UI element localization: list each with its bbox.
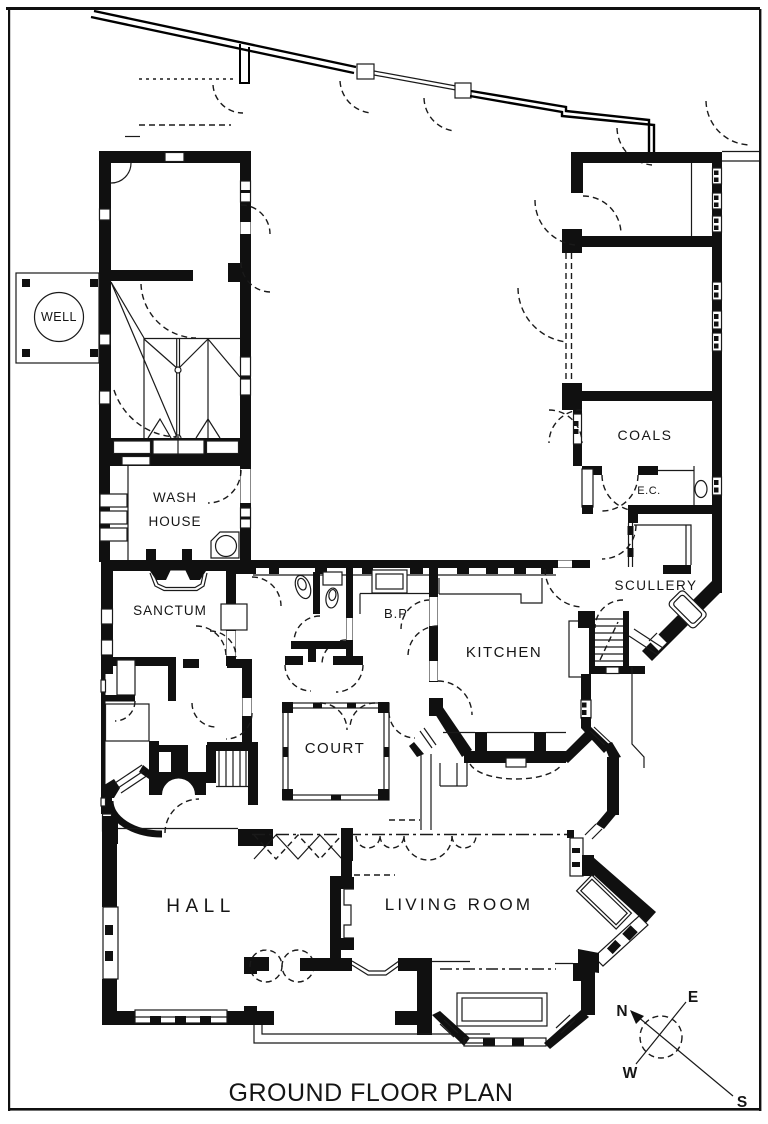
svg-text:HALL: HALL	[166, 896, 236, 917]
svg-text:COALS: COALS	[618, 427, 673, 443]
svg-text:E: E	[688, 989, 698, 1006]
svg-text:GROUND FLOOR PLAN: GROUND FLOOR PLAN	[229, 1079, 514, 1107]
svg-text:LIVING ROOM: LIVING ROOM	[385, 895, 534, 914]
svg-text:COURT: COURT	[305, 740, 366, 757]
svg-text:SCULLERY: SCULLERY	[614, 578, 697, 593]
svg-text:E.C.: E.C.	[637, 485, 660, 497]
svg-text:S: S	[737, 1094, 747, 1111]
svg-text:W: W	[623, 1065, 638, 1082]
svg-text:B.P: B.P	[384, 606, 408, 621]
svg-text:N: N	[616, 1003, 627, 1020]
svg-text:HOUSE: HOUSE	[148, 514, 201, 529]
svg-text:SANCTUM: SANCTUM	[133, 603, 207, 618]
svg-text:WELL: WELL	[41, 310, 77, 324]
svg-text:WASH: WASH	[153, 490, 197, 505]
svg-text:KITCHEN: KITCHEN	[466, 644, 542, 661]
